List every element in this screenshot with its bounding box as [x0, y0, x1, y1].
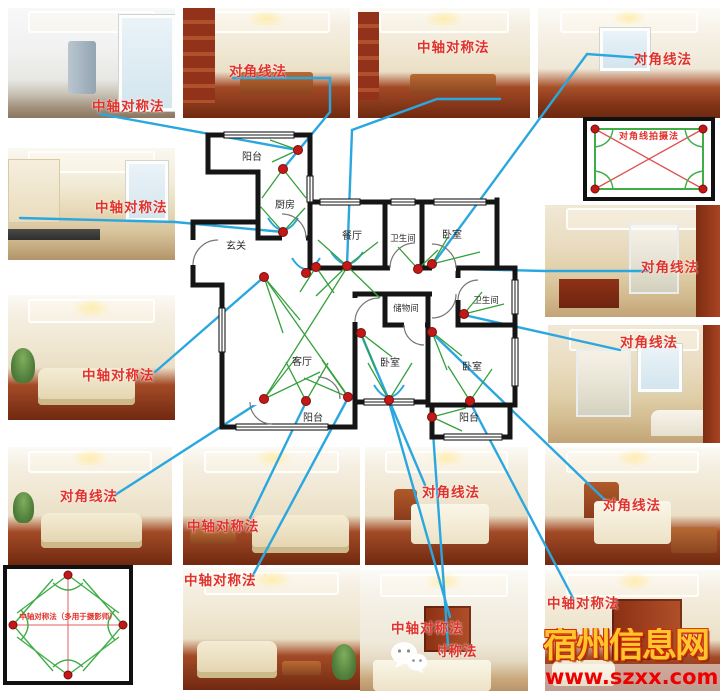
diagram-diagonal-method: 对角线拍摄法 [583, 117, 715, 201]
shower-glass-shape [576, 349, 632, 418]
ceiling-lamp-glow [615, 449, 654, 467]
fridge-shape [68, 41, 96, 94]
room-label-foyer: 玄关 [226, 239, 246, 252]
room-label-bath-1: 卫生间 [390, 233, 416, 244]
room-label-bedroom-tr: 卧室 [442, 228, 462, 241]
method-label: 对角线法 [60, 485, 118, 505]
plant-shape [13, 492, 34, 523]
diagram-diagonal-title: 对角线拍摄法 [587, 129, 711, 142]
room-label-living: 客厅 [292, 355, 312, 368]
plant-shape [332, 644, 357, 681]
photo-living-room-3 [183, 447, 360, 565]
ceiling-lamp-glow [424, 572, 464, 590]
lens-arcs [268, 218, 404, 397]
door-shape [703, 325, 720, 443]
method-label: 对角线法 [641, 256, 699, 276]
bookshelf-shape [358, 12, 379, 100]
sofa-shape [41, 513, 143, 548]
room-label-storage: 储物间 [393, 303, 419, 314]
method-label: 中轴对称法 [391, 617, 464, 637]
vanity-shape [559, 279, 619, 308]
photo-living-room-2 [8, 447, 172, 565]
method-label: 对角线法 [422, 481, 480, 501]
method-label: 中轴对称法 [417, 36, 490, 56]
room-label-balcony-top: 阳台 [242, 150, 262, 163]
plan-walls [193, 135, 515, 437]
method-label: 中轴对称法 [82, 364, 155, 384]
sofa-shape [252, 515, 349, 553]
door-shape [696, 205, 720, 317]
fov-rays [260, 140, 504, 431]
room-label-bedroom-r: 卧室 [462, 360, 482, 373]
sofa-shape [197, 641, 277, 678]
bookshelf-shape [183, 8, 215, 103]
method-label: 对角线法 [634, 48, 692, 68]
method-label: 中轴对称法 [184, 569, 257, 589]
door-arcs [193, 214, 478, 424]
room-label-kitchen: 厨房 [275, 198, 295, 211]
wechat-icon [390, 640, 428, 674]
photo-dining-room-2 [358, 8, 530, 118]
ceiling-lamp-glow [427, 449, 466, 467]
photo-bedroom-1 [365, 447, 528, 565]
ceiling-lamp-glow [71, 298, 111, 318]
chandelier-glow [246, 10, 286, 28]
cabinet-shape [8, 159, 60, 223]
diagram-symmetry-graphic [7, 569, 129, 681]
method-label: 中轴对称法 [92, 95, 165, 115]
dresser-shape [671, 527, 717, 553]
bed-shape [411, 504, 489, 544]
chandelier-glow [423, 10, 464, 28]
diagram-axis-symmetry-method: 中轴对称法（多用于摄影师） [3, 565, 133, 685]
method-label: 对角线法 [620, 331, 678, 351]
room-label-bedroom-c: 卧室 [380, 356, 400, 369]
camera-dots [260, 146, 475, 422]
door-gaps [190, 235, 461, 405]
diagram-symmetry-title: 中轴对称法（多用于摄影师） [7, 611, 129, 622]
ceiling-lamp-glow [254, 449, 293, 467]
method-label: 对角线法 [603, 494, 661, 514]
photography-composition-collage: 对角线拍摄法 中轴对称法（多用于摄影师） [0, 0, 720, 691]
watermark-site-url: www.szxx.com.cn [545, 664, 720, 691]
plant-shape [11, 348, 34, 383]
method-label: 对角线法 [229, 60, 287, 80]
method-label: 中轴对称法 [95, 196, 168, 216]
ceiling-lamp-glow [611, 10, 647, 25]
watermark-site-name: 宿州信息网 [543, 628, 720, 663]
dining-table-shape [410, 74, 496, 94]
room-label-balcony-br: 阳台 [459, 411, 479, 424]
method-label: 中轴对称法 [547, 592, 620, 612]
photo-empty-bedroom [538, 8, 720, 118]
window-shape [638, 344, 682, 392]
ceiling-lamp-glow [70, 449, 109, 468]
ceiling-lamp-glow [615, 572, 654, 590]
room-labels: 阳台 厨房 玄关 餐厅 卫生间 卧室 储物间 卫生间 客厅 卧室 卧室 阳台 阳… [226, 150, 499, 424]
room-label-dining: 餐厅 [342, 229, 362, 242]
cooktop-shape [8, 229, 100, 240]
coffee-table-shape [282, 661, 321, 676]
photo-living-room-1 [8, 295, 175, 420]
plan-windows [219, 132, 518, 440]
method-label: 中轴对称法 [187, 515, 260, 535]
room-label-balcony-bl: 阳台 [303, 411, 323, 424]
room-label-bath-2: 卫生间 [473, 295, 499, 306]
